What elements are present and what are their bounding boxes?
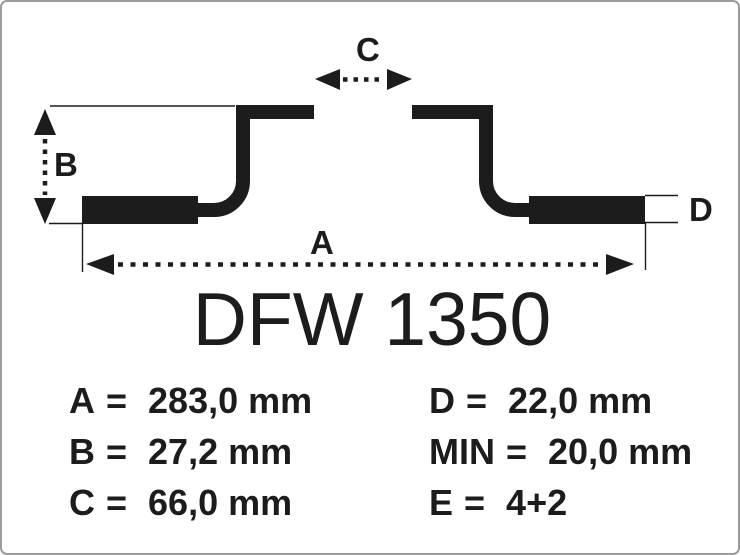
arrowhead-left [315,69,340,90]
spec-label: B [69,431,95,472]
dimension-arrow-c [315,69,412,90]
equals-sign: = [506,431,527,472]
right-friction-ring [529,196,645,224]
spec-label: A [69,380,95,421]
equals-sign: = [466,380,487,421]
spec-label: MIN [429,431,495,472]
dimension-label-d: D [689,193,713,226]
dimension-arrow-a [86,254,634,275]
dimension-arrow-b [34,109,56,224]
disc-hat-profile [196,112,533,210]
spec-value: 66,0 mm [148,482,292,523]
spec-value: 20,0 mm [548,431,692,472]
spec-value: 27,2 mm [148,431,292,472]
left-hat-profile [196,112,314,210]
arrowhead-right [387,69,412,90]
equals-sign: = [464,482,485,523]
spec-value: 283,0 mm [148,380,312,421]
spec-value: 4+2 [506,482,567,523]
equals-sign: = [106,380,127,421]
spec-value: 22,0 mm [508,380,652,421]
spec-row-d: D=22,0 mm [429,375,692,426]
equals-sign: = [106,482,127,523]
spec-row-e: E=4+2 [429,477,692,528]
spec-row-c: C=66,0 mm [69,477,312,528]
arrowhead-left [86,254,114,275]
spec-label: D [429,380,455,421]
brake-disc-spec-card: B C A D DFW 1350 A=283,0 mm B=27,2 mm C=… [0,0,740,555]
spec-list-left: A=283,0 mm B=27,2 mm C=66,0 mm [69,375,312,528]
dimension-label-a: A [310,226,334,259]
left-friction-ring [82,196,198,224]
right-hat-profile [412,112,533,210]
arrowhead-down [34,198,56,224]
dimension-label-b: B [54,148,78,181]
dimension-label-c: C [356,33,380,66]
extension-lines [49,106,678,272]
spec-row-b: B=27,2 mm [69,426,312,477]
spec-row-min: MIN=20,0 mm [429,426,692,477]
arrowhead-up [34,109,56,135]
spec-list-right: D=22,0 mm MIN=20,0 mm E=4+2 [429,375,692,528]
spec-row-a: A=283,0 mm [69,375,312,426]
disc-cross-section [82,196,645,224]
spec-label: E [429,482,453,523]
part-number: DFW 1350 [2,282,740,357]
equals-sign: = [106,431,127,472]
spec-label: C [69,482,95,523]
arrowhead-right [606,254,634,275]
